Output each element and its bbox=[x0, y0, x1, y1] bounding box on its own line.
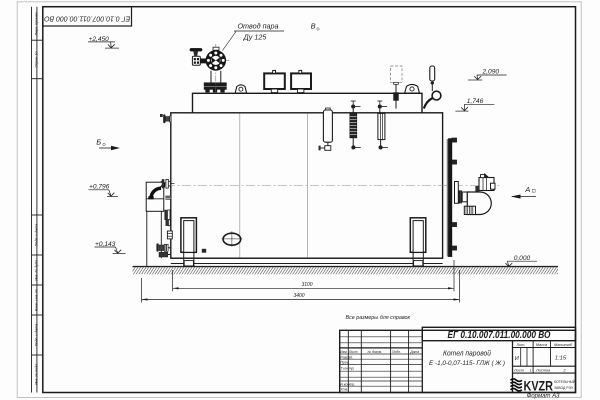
svg-text:Листов: Листов bbox=[535, 367, 550, 372]
svg-text:2,090: 2,090 bbox=[482, 68, 500, 75]
svg-text:Лит.: Лит. bbox=[516, 343, 526, 347]
svg-text:КОТЕЛЬНЫЙ: КОТЕЛЬНЫЙ bbox=[554, 380, 576, 384]
svg-text:ЕГ 0.10.007.011.00.000 ВО: ЕГ 0.10.007.011.00.000 ВО bbox=[448, 330, 551, 341]
svg-text:Б: Б bbox=[96, 137, 101, 146]
svg-text:ЕГ 0.10.007.011.00.000 ВО: ЕГ 0.10.007.011.00.000 ВО bbox=[44, 14, 131, 21]
svg-text:Лист: Лист bbox=[513, 367, 525, 372]
svg-text:Подп. и дата: Подп. и дата bbox=[35, 224, 39, 247]
svg-text:Справ. №: Справ. № bbox=[35, 51, 39, 67]
svg-text:Масштаб: Масштаб bbox=[554, 343, 573, 347]
svg-text:Инв. № подл.: Инв. № подл. bbox=[35, 363, 39, 385]
svg-text:Все размеры для справок: Все размеры для справок bbox=[346, 315, 411, 321]
svg-text:Пров.: Пров. bbox=[340, 361, 349, 365]
svg-text:Перв. примен.: Перв. примен. bbox=[35, 12, 39, 36]
svg-text:KVZR: KVZR bbox=[524, 378, 554, 394]
svg-text:Отвод пара: Отвод пара bbox=[237, 22, 278, 31]
svg-text:ЗАВОД РЭУ: ЗАВОД РЭУ bbox=[554, 386, 574, 390]
svg-text:3400: 3400 bbox=[293, 293, 304, 299]
svg-text:И: И bbox=[515, 356, 519, 362]
svg-text:Формат А3: Формат А3 bbox=[527, 393, 560, 399]
svg-text:Разраб.: Разраб. bbox=[340, 355, 353, 359]
svg-text:А: А bbox=[524, 185, 530, 194]
svg-text:Подп. и дата: Подп. и дата bbox=[35, 324, 39, 347]
svg-text:Е -1,0-0,07-115- ГЛЖ ( Ж ): Е -1,0-0,07-115- ГЛЖ ( Ж ) bbox=[429, 360, 505, 367]
svg-text:3100: 3100 bbox=[301, 282, 312, 288]
svg-text:Дата: Дата bbox=[409, 350, 419, 354]
svg-text:Взам. инв. №: Взам. инв. № bbox=[35, 289, 39, 311]
svg-text:Т.контр.: Т.контр. bbox=[340, 367, 354, 371]
svg-text:Утв.: Утв. bbox=[340, 388, 348, 392]
svg-text:Масса: Масса bbox=[536, 343, 547, 347]
svg-text:Лист: Лист bbox=[348, 350, 358, 354]
svg-text:1,746: 1,746 bbox=[467, 98, 484, 105]
svg-text:Изм.: Изм. bbox=[340, 350, 347, 354]
svg-text:1: 1 bbox=[530, 367, 532, 372]
svg-text:0,000: 0,000 bbox=[514, 255, 531, 262]
svg-text:Котел паровой: Котел паровой bbox=[443, 350, 491, 358]
svg-text:№ докум.: № докум. bbox=[368, 350, 383, 354]
svg-text:1:15: 1:15 bbox=[555, 356, 567, 362]
svg-text:В: В bbox=[311, 22, 316, 31]
svg-text:Ду 125: Ду 125 bbox=[243, 33, 268, 42]
svg-text:Подп.: Подп. bbox=[392, 350, 401, 354]
svg-text:Инв. № дубл.: Инв. № дубл. bbox=[35, 259, 39, 281]
svg-text:Н.контр.: Н.контр. bbox=[340, 382, 355, 386]
